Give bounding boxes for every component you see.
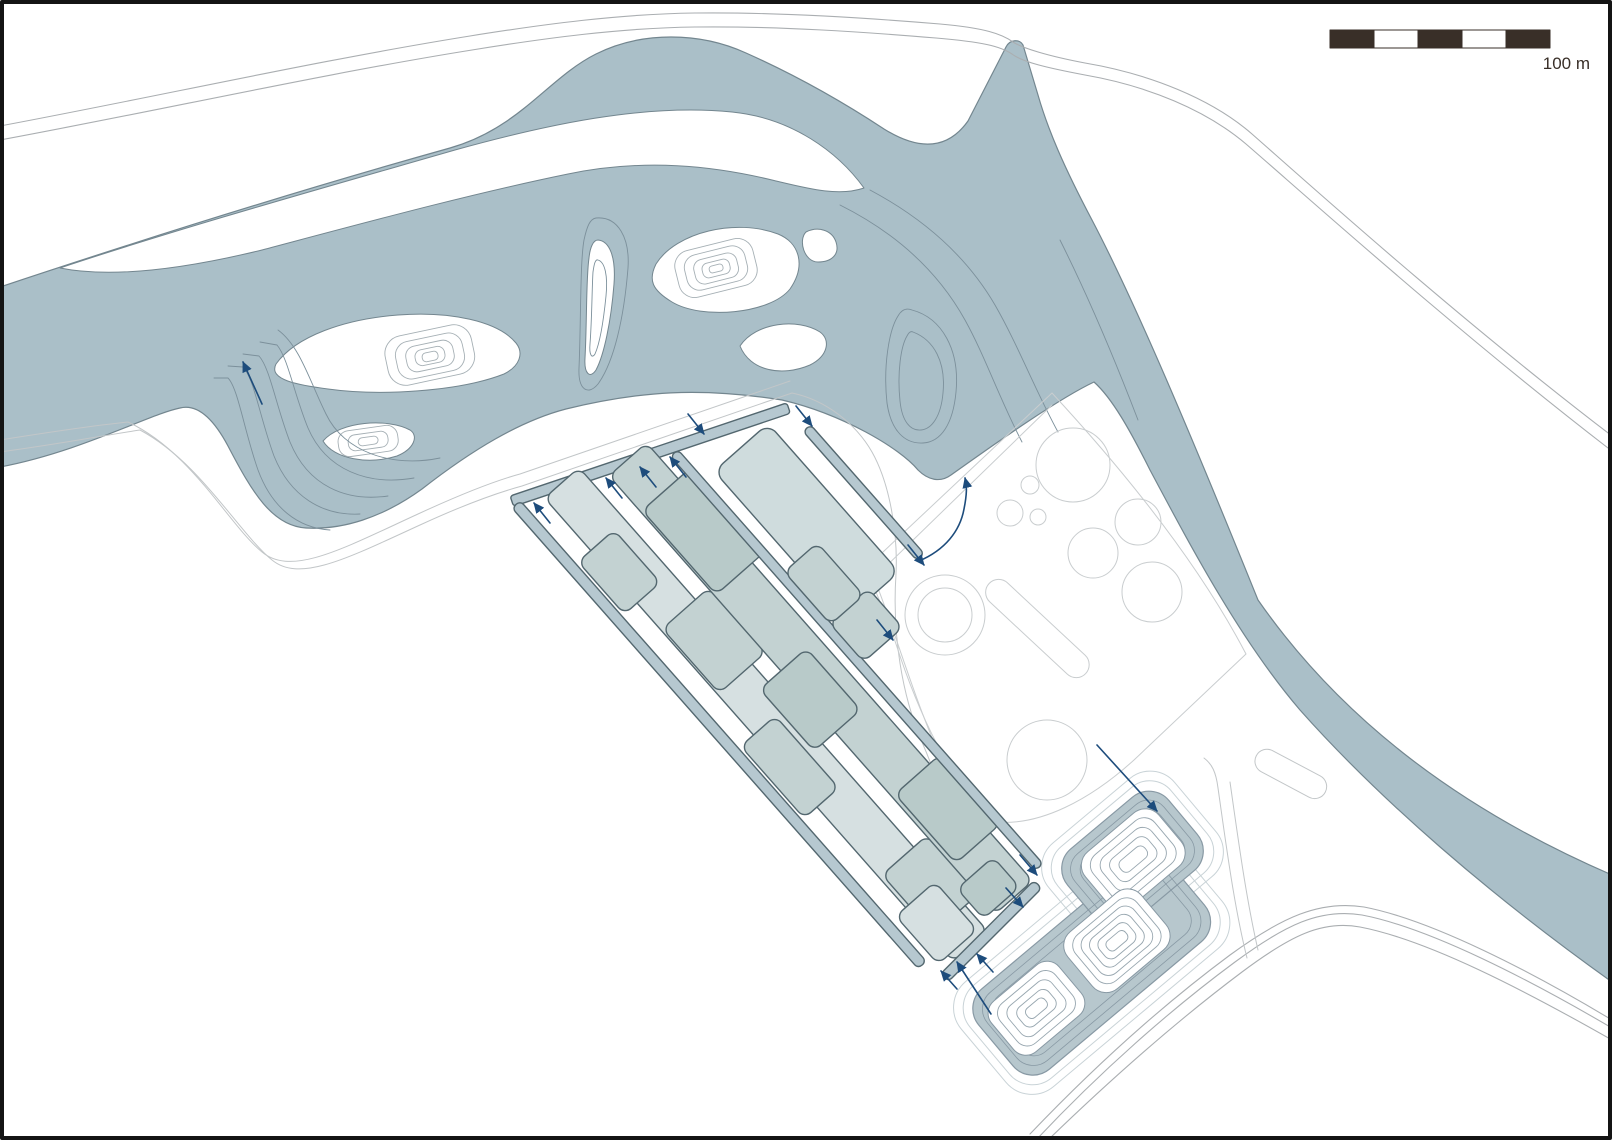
site-plan-page: 100 m xyxy=(0,0,1612,1140)
scale-label: 100 m xyxy=(1543,54,1590,73)
scale-bar: 100 m xyxy=(1330,30,1590,73)
scale-segment-3 xyxy=(1418,30,1462,48)
scale-segment-5 xyxy=(1506,30,1550,48)
scale-segment-2 xyxy=(1374,30,1418,48)
flow-arrow-header-end xyxy=(796,406,812,426)
circle-features xyxy=(905,428,1182,800)
pill-outline xyxy=(1251,745,1331,803)
flow-arrow-collector-s1 xyxy=(977,954,993,972)
field-strips xyxy=(512,323,1139,982)
scale-segment-1 xyxy=(1330,30,1374,48)
scale-segment-4 xyxy=(1462,30,1506,48)
road-spur-2 xyxy=(1230,782,1258,950)
flow-arrow-to-river xyxy=(919,478,966,561)
site-plan-map: 100 m xyxy=(0,0,1612,1140)
